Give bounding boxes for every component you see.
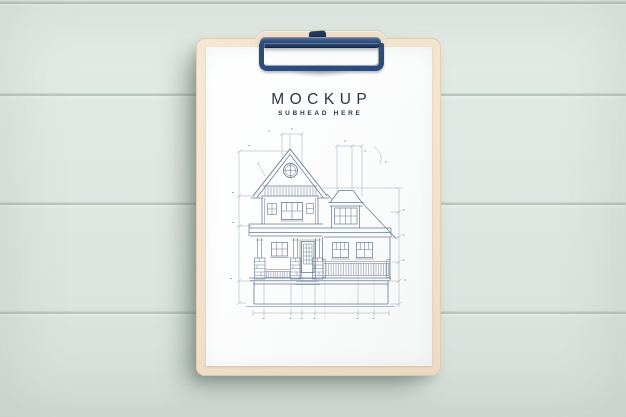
house-blueprint-illustration — [206, 47, 432, 366]
clip-wire — [259, 43, 384, 71]
paper-sheet: MOCKUP SUBHEAD HERE — [206, 47, 432, 366]
photo-backdrop: MOCKUP SUBHEAD HERE — [0, 0, 626, 417]
clipboard: MOCKUP SUBHEAD HERE — [0, 0, 626, 417]
